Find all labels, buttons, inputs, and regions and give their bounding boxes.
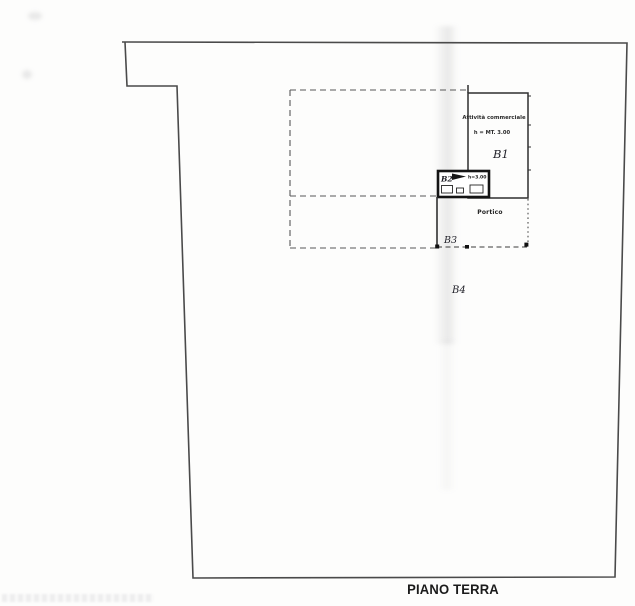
scanned-floor-plan-page: Attività commerciale h = MT. 3.00 B1 B2 … xyxy=(0,0,635,606)
portico-name-label: Portico xyxy=(477,209,502,216)
area-b4-id-label: B4 xyxy=(451,285,466,296)
room-b1-use-label: Attività commerciale xyxy=(462,114,526,121)
floor-plan-drawing: Attività commerciale h = MT. 3.00 B1 B2 … xyxy=(0,0,635,606)
room-b1-id-label: B1 xyxy=(492,147,509,161)
property-boundary xyxy=(122,42,627,578)
room-b2: B2 h=3.00 xyxy=(438,171,489,197)
dashed-area-outline xyxy=(290,90,466,248)
area-portico: Portico B3 xyxy=(435,197,528,249)
room-b1-height-label: h = MT. 3.00 xyxy=(474,130,511,136)
room-b3-id-label: B3 xyxy=(443,235,457,246)
room-b2-height-label: h=3.00 xyxy=(468,175,486,181)
plan-title: PIANO TERRA xyxy=(388,581,518,597)
room-b2-id-label: B2 xyxy=(440,175,453,184)
